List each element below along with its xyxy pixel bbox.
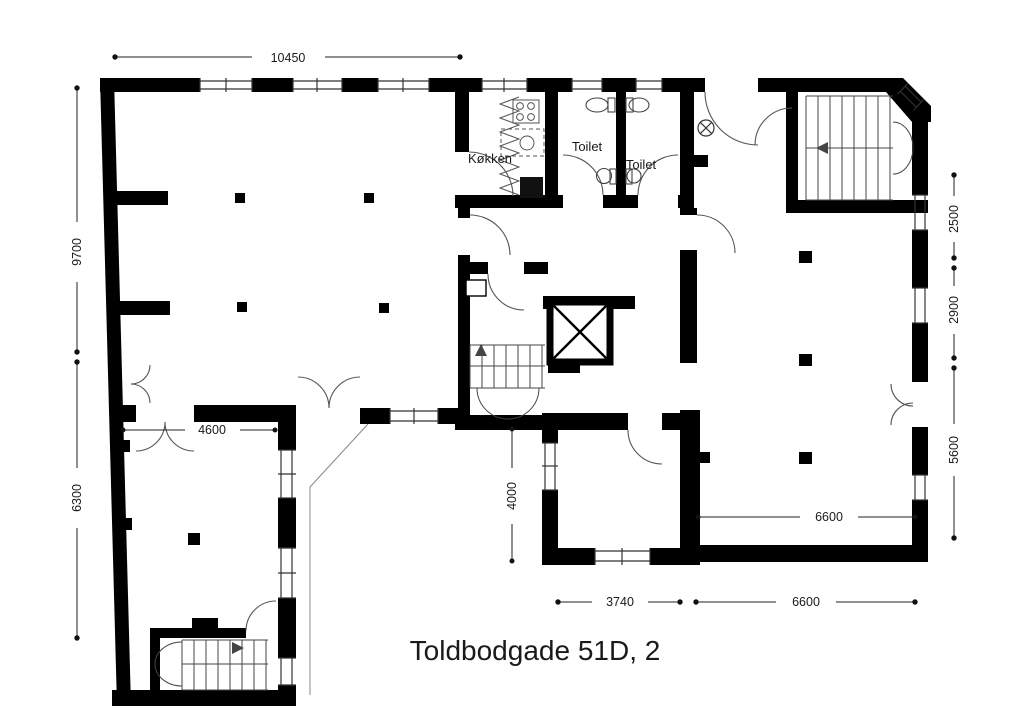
window-top-kitchen	[482, 78, 527, 92]
window-block-3	[278, 658, 296, 685]
guide-lines	[310, 424, 368, 695]
wc-left-tank	[608, 98, 615, 112]
stair-center	[466, 280, 545, 419]
dim-label-right-lower: 5600	[947, 436, 961, 464]
window-top-toilet-right	[636, 78, 662, 92]
leftwall-french-door-arc1	[131, 365, 150, 384]
room-label-toilet-left: Toilet	[572, 139, 603, 154]
window-bc-bottom	[595, 548, 650, 565]
left-outer-wall	[100, 78, 131, 706]
window-top-1	[200, 78, 252, 92]
room-labels: Køkken Toilet Toilet	[468, 139, 657, 172]
room-label-kitchen: Køkken	[468, 151, 512, 166]
dim-label-top: 10450	[271, 51, 306, 65]
windows	[200, 78, 928, 685]
dim-left	[74, 85, 79, 640]
stair-center-door-arc	[488, 274, 524, 310]
stair-top-right	[806, 96, 913, 200]
dim-label-right-upper: 2500	[947, 205, 961, 233]
kitchen-fixtures	[500, 97, 544, 198]
wc-left	[586, 98, 608, 112]
bigroom-to-hall-door-arc	[470, 215, 510, 255]
dim-label-6600-bottom: 6600	[792, 595, 820, 609]
floor-plan-page: 10450 9700 6300 2500 2900 5600 4600 4000…	[0, 0, 1024, 722]
dim-label-4600: 4600	[198, 423, 226, 437]
kitchen-appliance	[520, 177, 543, 198]
window-top-2	[293, 78, 342, 92]
dim-6600-inner	[696, 515, 918, 520]
dim-label-3740: 3740	[606, 595, 634, 609]
dim-label-right-middle: 2900	[947, 296, 961, 324]
window-bc-left	[542, 443, 558, 490]
window-right-2	[912, 288, 928, 323]
entrance-door-arc	[705, 92, 758, 145]
dim-label-6600-inner: 6600	[815, 510, 843, 524]
plan-title: Toldbodgade 51D, 2	[410, 635, 661, 666]
dim-label-left-lower: 6300	[70, 484, 84, 512]
bigroom-french-door-arc2	[329, 377, 360, 408]
window-block-2	[278, 548, 296, 598]
bc-room-door-arc	[628, 430, 662, 464]
stair-bottom-left	[155, 640, 268, 690]
leftwall-french-door-arc2	[131, 384, 150, 403]
elevator	[550, 302, 610, 362]
bigroom-french-door-arc1	[298, 377, 329, 408]
blockroom-french-door-arc1	[136, 422, 165, 451]
dim-label-left-upper: 9700	[70, 238, 84, 266]
window-block-1	[278, 450, 296, 498]
room-label-toilet-right: Toilet	[626, 157, 657, 172]
sink-left-counter	[610, 169, 616, 184]
window-top-3	[378, 78, 429, 92]
kitchen-sink	[520, 136, 534, 150]
dimension-labels: 10450 9700 6300 2500 2900 5600 4600 4000…	[70, 51, 961, 609]
floor-plan-drawing: 10450 9700 6300 2500 2900 5600 4600 4000…	[0, 0, 1024, 722]
blockroom-french-door-arc2	[165, 422, 194, 451]
hall-to-rightroom-door-arc	[697, 215, 735, 253]
block-stair-door-arc	[246, 601, 276, 631]
window-right-3	[912, 475, 928, 500]
dim-label-4000: 4000	[505, 482, 519, 510]
ceiling-light-symbol	[698, 120, 714, 136]
kitchen-counter-zigzag	[500, 97, 519, 195]
stair-center-closet	[466, 280, 486, 296]
window-center-wall	[390, 408, 438, 424]
stair-center-direction-arrow	[475, 344, 487, 356]
wc-right	[629, 98, 649, 112]
window-top-toilet-left	[572, 78, 602, 92]
